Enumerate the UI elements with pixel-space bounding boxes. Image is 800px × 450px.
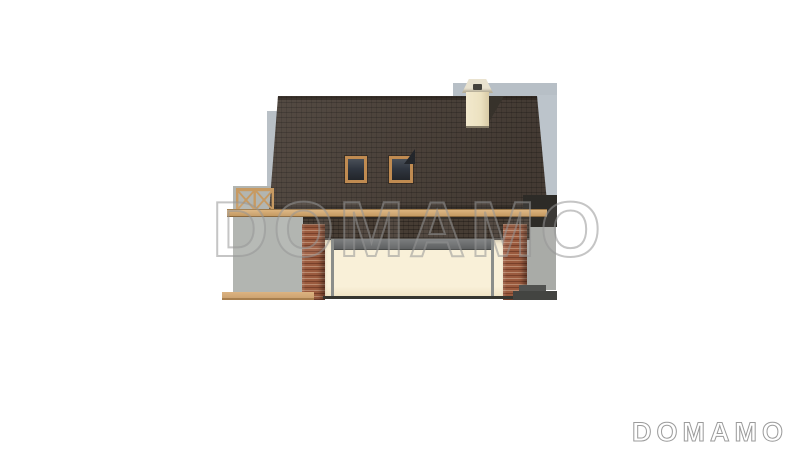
roof-window-left [345,156,367,183]
roof-ridge [266,96,548,100]
door-post-left [331,239,334,297]
chimney-body [466,92,489,128]
entry-step-lower [513,291,557,300]
door-post-right [491,239,494,297]
terrace-railing [236,188,274,210]
fascia-beam [227,209,547,217]
terrace-deck [222,292,314,300]
garage-lintel-beam [334,239,491,250]
brand-logo: DOMAMO [632,419,788,446]
chimney-vent [473,84,482,90]
ground-line [323,296,530,299]
porch-roof [303,217,530,240]
main-roof [266,96,548,213]
elevation-canvas: DOMAMO DOMAMO [0,0,800,450]
brick-pillar-left [302,224,325,300]
